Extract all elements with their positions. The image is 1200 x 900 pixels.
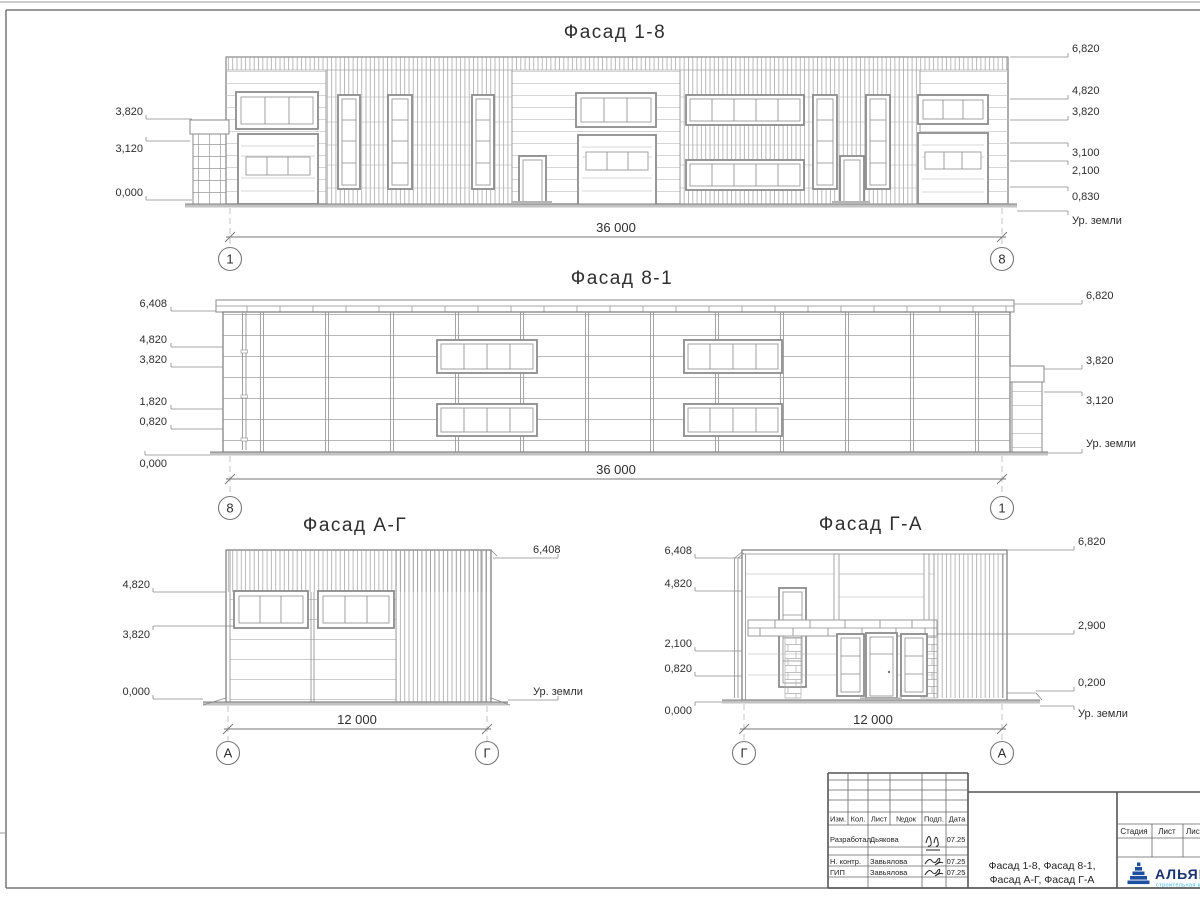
svg-text:1: 1 [998, 501, 1005, 516]
signature [925, 858, 943, 865]
axis-bubble-a: А [991, 742, 1014, 765]
dim-value: 36 000 [596, 462, 636, 477]
axis-bubble-8: 8 [219, 497, 242, 520]
svg-text:6,408: 6,408 [139, 298, 167, 310]
svg-text:8: 8 [226, 501, 233, 516]
svg-text:Г: Г [483, 746, 490, 761]
svg-text:4,820: 4,820 [664, 578, 692, 590]
svg-text:Дьякова: Дьякова [870, 835, 899, 844]
signature-row: Н. контр. Завьялова 07.25 [830, 857, 965, 866]
sectional-gate [238, 134, 318, 204]
axis-bubble-g: Г [476, 742, 499, 765]
signature-row: ГИП Завьялова 07.25 [830, 868, 965, 877]
facade-a-g-title: Фасад А-Г [303, 515, 407, 536]
facade-1-8-title: Фасад 1-8 [564, 22, 666, 43]
dimension-12000: 12 000 [223, 706, 492, 742]
axis-bubble-a: А [217, 742, 240, 765]
facade-1-8-annex [190, 120, 229, 205]
svg-text:Дата: Дата [949, 815, 966, 824]
svg-text:А: А [998, 746, 1007, 761]
facade-8-1-drawing: Фасад 8-1 36 000 [139, 268, 1135, 520]
svg-text:Подп.: Подп. [924, 815, 944, 824]
sectional-gate [578, 135, 656, 205]
svg-text:Ур. земли: Ур. земли [1072, 215, 1122, 227]
svg-text:4,820: 4,820 [122, 579, 150, 591]
svg-text:Ур. земли: Ур. земли [1086, 438, 1136, 450]
svg-text:6,820: 6,820 [1072, 43, 1100, 55]
svg-text:Ур. земли: Ур. земли [533, 686, 583, 698]
svg-text:0,200: 0,200 [1078, 677, 1106, 689]
svg-text:0,000: 0,000 [139, 458, 167, 470]
service-door [840, 156, 864, 204]
svg-text:3,820: 3,820 [1072, 106, 1100, 118]
dimension-36000: 36 000 [225, 208, 1007, 248]
svg-text:Фасад А-Г, Фасад Г-А: Фасад А-Г, Фасад Г-А [990, 874, 1095, 886]
svg-text:8: 8 [998, 252, 1005, 267]
svg-text:Изм.: Изм. [830, 815, 846, 824]
svg-text:Разработал: Разработал [830, 835, 871, 844]
svg-text:Стадия: Стадия [1120, 827, 1147, 836]
elevation-marks-left: 3,820 3,120 0,000 [115, 106, 192, 200]
elevation-marks-left: 4,820 3,820 0,000 [122, 579, 234, 699]
slat-cladding [934, 554, 1005, 698]
dimension-12000: 12 000 [739, 704, 1007, 742]
service-door [519, 156, 546, 204]
axis-bubble-1: 1 [991, 497, 1014, 520]
company-subtitle: строительная компания [1156, 883, 1200, 889]
svg-text:Листов: Листов [1186, 827, 1200, 836]
svg-text:6,408: 6,408 [533, 544, 561, 556]
svg-text:№док: №док [896, 815, 917, 824]
facade-g-a-drawing: Фасад Г-А [664, 514, 1127, 765]
axis-bubble-1: 1 [219, 248, 242, 271]
svg-text:07.25: 07.25 [947, 857, 966, 866]
svg-text:3,820: 3,820 [139, 354, 167, 366]
svg-text:6,408: 6,408 [664, 545, 692, 557]
svg-text:1: 1 [226, 252, 233, 267]
drawing-sheet: Фасад 1-8 [0, 0, 1200, 900]
svg-text:0,820: 0,820 [664, 663, 692, 675]
facade-1-8-drawing: Фасад 1-8 [115, 22, 1121, 271]
window-ribbon [918, 95, 988, 124]
elevation-marks-right: 6,820 4,820 3,820 3,100 2,100 0,830 Ур. … [1010, 43, 1122, 227]
svg-text:0,000: 0,000 [122, 686, 150, 698]
svg-text:Фасад 1-8, Фасад 8-1,: Фасад 1-8, Фасад 8-1, [988, 860, 1095, 872]
svg-text:6,820: 6,820 [1078, 536, 1106, 548]
svg-text:4,820: 4,820 [139, 334, 167, 346]
window-ribbon [576, 93, 656, 127]
signature [925, 869, 943, 876]
window-ribbon [236, 92, 318, 129]
dimension-36000: 36 000 [225, 456, 1007, 497]
dim-value: 12 000 [337, 712, 377, 727]
stage-sheet-header: Стадия Лист Листов [1120, 827, 1200, 836]
dim-value: 12 000 [853, 712, 893, 727]
svg-text:0,000: 0,000 [115, 187, 143, 199]
svg-text:2,100: 2,100 [1072, 165, 1100, 177]
svg-text:0,820: 0,820 [139, 416, 167, 428]
axis-bubble-8: 8 [991, 248, 1014, 271]
svg-text:0,830: 0,830 [1072, 191, 1100, 203]
svg-text:Лист: Лист [871, 815, 888, 824]
svg-text:2,100: 2,100 [664, 638, 692, 650]
ground-line [203, 702, 508, 706]
company-logo: АЛЬЯНС строительная компания [1128, 863, 1200, 889]
svg-text:0,000: 0,000 [664, 705, 692, 717]
elevation-marks-left: 6,408 4,820 2,100 0,820 0,000 [664, 545, 742, 717]
svg-text:Завьялова: Завьялова [870, 868, 908, 877]
entrance-sidelight [837, 634, 864, 696]
facade-a-g-drawing: Фасад А-Г 12 000 А Г 4,820 3,820 0,000 6… [122, 515, 582, 765]
signature [926, 836, 940, 850]
company-name: АЛЬЯНС [1155, 866, 1200, 882]
svg-text:2,900: 2,900 [1078, 620, 1106, 632]
elevation-marks-right: 6,408 Ур. земли [491, 544, 583, 700]
ground-line [210, 452, 1048, 456]
svg-text:3,820: 3,820 [122, 629, 150, 641]
sectional-gate [918, 133, 988, 204]
svg-text:3,100: 3,100 [1072, 147, 1100, 159]
svg-text:Н. контр.: Н. контр. [830, 857, 861, 866]
axis-bubble-g: Г [733, 742, 756, 765]
facade-g-a-title: Фасад Г-А [819, 514, 923, 535]
dim-value: 36 000 [596, 220, 636, 235]
stone-pier [785, 636, 801, 698]
entrance-door [866, 633, 897, 698]
svg-text:07.25: 07.25 [947, 868, 966, 877]
svg-text:3,820: 3,820 [1086, 355, 1114, 367]
svg-text:3,120: 3,120 [1086, 395, 1114, 407]
title-block: Изм. Кол. Лист №док Подп. Дата Разработа… [828, 773, 1200, 889]
elevation-marks-left: 6,408 4,820 3,820 1,820 0,820 0,000 [139, 298, 223, 470]
doc-title-cell: Фасад 1-8, Фасад 8-1, Фасад А-Г, Фасад Г… [988, 860, 1095, 886]
svg-text:3,820: 3,820 [115, 106, 143, 118]
facade-8-1-title: Фасад 8-1 [571, 268, 673, 289]
svg-text:4,820: 4,820 [1072, 85, 1100, 97]
svg-text:3,120: 3,120 [115, 143, 143, 155]
svg-text:Лист: Лист [1158, 827, 1176, 836]
svg-text:1,820: 1,820 [139, 396, 167, 408]
ground-line [185, 204, 1017, 208]
signature-row: Разработал Дьякова 07.25 [830, 835, 965, 850]
svg-text:Завьялова: Завьялова [870, 857, 908, 866]
svg-text:Ур. земли: Ур. земли [1078, 708, 1128, 720]
svg-text:6,820: 6,820 [1086, 290, 1114, 302]
svg-text:А: А [224, 746, 233, 761]
svg-text:Г: Г [740, 746, 747, 761]
svg-text:07.25: 07.25 [947, 835, 966, 844]
svg-text:ГИП: ГИП [830, 868, 845, 877]
pyramid-logo-icon [1128, 863, 1150, 885]
facade-8-1-annex [1010, 366, 1044, 452]
entrance-sidelight [901, 634, 927, 696]
ground-line [722, 700, 1040, 704]
svg-text:Кол.: Кол. [851, 815, 866, 824]
